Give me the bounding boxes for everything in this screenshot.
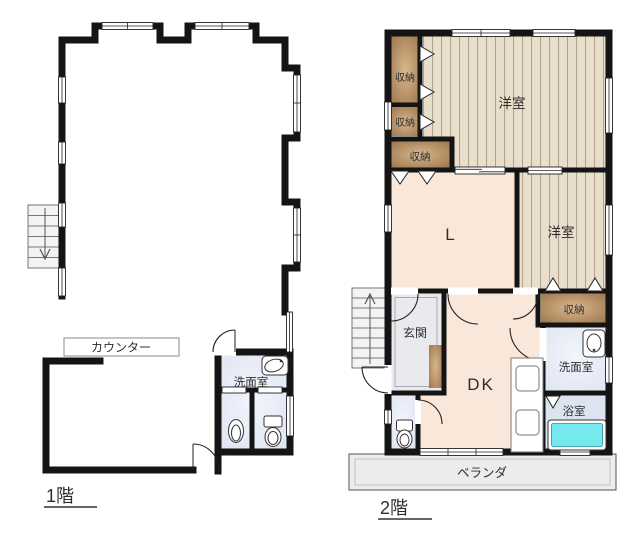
- floor2-stairs: [352, 288, 388, 368]
- storage2-label: 収納: [395, 116, 415, 129]
- veranda: ベランダ: [349, 454, 616, 490]
- floor2-plan: ベランダ: [349, 30, 616, 520]
- washroom2-label: 洗面室: [559, 360, 594, 374]
- living-label: L: [445, 225, 454, 244]
- bath-label: 浴室: [563, 404, 586, 418]
- entry-door-opening: [385, 365, 392, 394]
- sink-icon: [583, 330, 605, 357]
- floorplan-canvas: カウンター 洗面室 1階: [0, 0, 640, 535]
- floor1-title: 1階: [44, 486, 97, 507]
- floor1-washroom-label: 洗面室: [234, 375, 269, 389]
- toilet-icon: [264, 416, 282, 447]
- floor1-plan: カウンター 洗面室 1階: [28, 23, 301, 508]
- dk-label: DK: [467, 375, 495, 394]
- kitchen-counter: [511, 358, 543, 452]
- storage4-label: 収納: [564, 303, 585, 316]
- counter-label: カウンター: [91, 341, 151, 355]
- urinal-icon: [229, 420, 244, 443]
- room-storage1: [391, 37, 420, 104]
- storage1-label: 収納: [395, 71, 415, 84]
- shoe-cabinet: [429, 345, 442, 388]
- western2-label: 洋室: [548, 224, 575, 240]
- floor1-stairs: [28, 205, 62, 268]
- western1-label: 洋室: [499, 95, 526, 111]
- veranda-label: ベランダ: [457, 465, 507, 480]
- floorplan-page: カウンター 洗面室 1階: [0, 0, 640, 535]
- sink-icon: [262, 356, 288, 375]
- svg-text:1階: 1階: [46, 486, 74, 506]
- toilet-icon: [397, 420, 413, 448]
- bathtub-icon: [548, 420, 606, 450]
- svg-text:2階: 2階: [380, 498, 408, 518]
- counter: カウンター: [64, 338, 179, 356]
- floor2-title: 2階: [378, 498, 432, 519]
- entry-door: [362, 367, 388, 393]
- storage3-label: 収納: [410, 150, 431, 163]
- entrance-label: 玄関: [403, 325, 427, 340]
